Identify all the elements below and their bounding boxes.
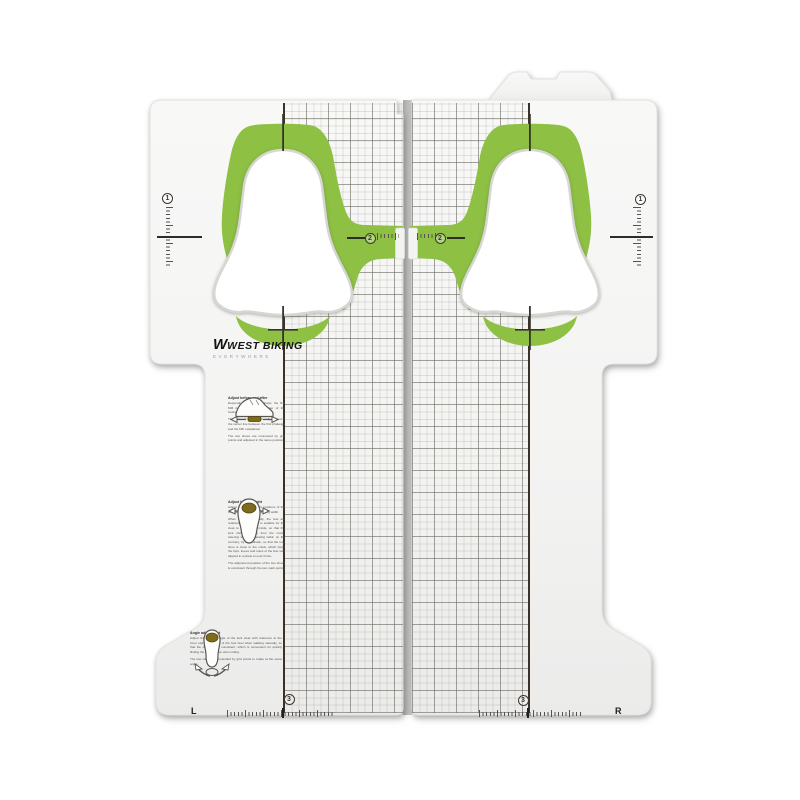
side-label-right: R	[615, 706, 622, 716]
marker-3-right-label: 3	[521, 697, 525, 704]
marker-1-right-label: 1	[639, 196, 643, 203]
ruler-bottom-right-long	[479, 710, 582, 717]
marker-1-left: 1	[162, 193, 173, 204]
instruction-paragraph: The two shoes are connected by grid poin…	[228, 434, 285, 443]
marker-2-right-line	[447, 237, 465, 239]
marker-2-left: 2	[365, 233, 376, 244]
crosshair-line-right	[610, 236, 653, 238]
marker-3-left: 3	[284, 694, 295, 705]
side-label-right-text: R	[615, 706, 622, 716]
marker-1-left-label: 1	[166, 195, 170, 202]
instruction-paragraph: The adjustment position of the two shoes…	[228, 561, 285, 570]
brand-logo: WWEST BIKING EVERYWHERE	[213, 337, 303, 360]
cleat-shapes	[0, 0, 800, 800]
brand-tagline: EVERYWHERE	[213, 355, 303, 360]
crosshair-line-left	[157, 236, 202, 238]
marker-3-right: 3	[518, 695, 529, 706]
side-label-left-text: L	[191, 706, 197, 716]
marker-2-left-line	[347, 237, 365, 239]
marker-1-right: 1	[635, 194, 646, 205]
marker-2-left-ticks-long	[377, 233, 399, 240]
marker-3-left-label: 3	[287, 696, 291, 703]
ruler-bottom-left-zero	[282, 708, 284, 718]
instruction-block-left-right: Adjust left and right Adjust the left an…	[228, 497, 285, 573]
marker-2-right: 2	[435, 233, 446, 244]
product-photo: 1 1 2 2 3 3 L R WWEST BIKING EVERYWHERE	[0, 0, 800, 800]
instruction-block-angle: Angle adjustment Adjust the rotation ang…	[190, 628, 282, 669]
side-label-left: L	[191, 706, 197, 716]
marker-2-right-label: 2	[438, 235, 442, 242]
cleat-template-right	[409, 114, 599, 350]
brand-name: WEST BIKING	[227, 340, 303, 352]
ruler-bottom-right-zero	[527, 708, 529, 718]
marker-2-left-label: 2	[368, 235, 372, 242]
cleat-template-left	[214, 114, 404, 350]
brand-initial: W	[213, 336, 227, 353]
instruction-block-fore-aft: Adjust before and after Depending on the…	[228, 393, 285, 446]
